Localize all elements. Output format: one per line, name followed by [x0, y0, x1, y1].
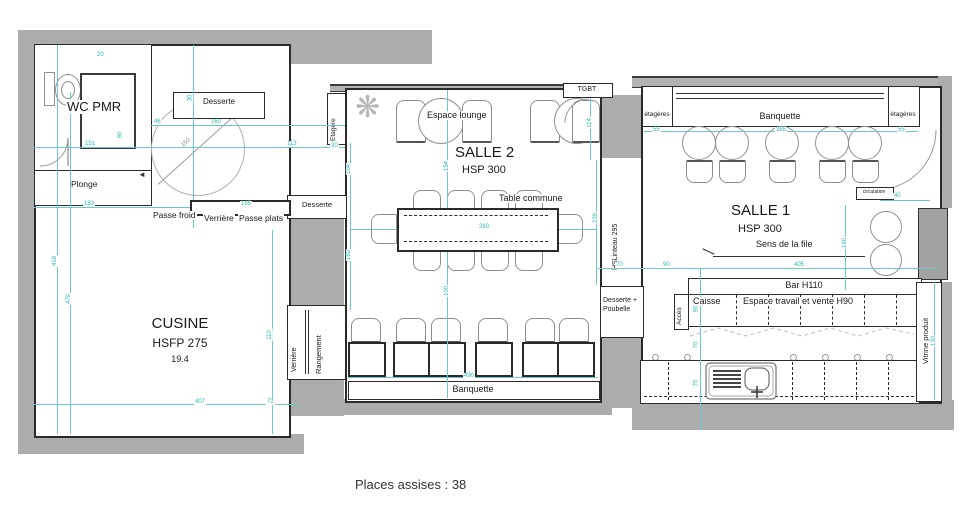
- plonge-label: Plonge: [70, 180, 98, 189]
- vitrine-label: Vitrine produit: [922, 296, 930, 386]
- dimension-value: 154: [444, 160, 450, 172]
- counter-divider: [856, 362, 857, 400]
- dimension-value: 113: [286, 141, 298, 147]
- wall-segment: [287, 217, 344, 305]
- salle1-height: HSP 300: [738, 224, 782, 236]
- tgbt-label: TGBT: [563, 86, 611, 93]
- counter-divider: [668, 362, 669, 400]
- dimension-value: 70: [693, 379, 699, 388]
- bar-label: Bar H110: [688, 281, 920, 290]
- passe-verriere-label: Verrière: [203, 214, 235, 223]
- dimension-value: 151: [84, 141, 96, 147]
- espace-travail-label: Espace travail et vente H90: [742, 297, 854, 306]
- square-table: [522, 342, 560, 377]
- wc-door-arc: [40, 138, 70, 168]
- dimension-line: [880, 200, 930, 201]
- dining-chair: [525, 318, 555, 343]
- cuisine-area: 19.4: [105, 355, 255, 364]
- dimension-value: 407: [194, 399, 206, 405]
- dimension-value: 385: [775, 127, 787, 133]
- table-commune-inner: [404, 241, 548, 242]
- round-table: [870, 244, 902, 276]
- dimension-value: 70: [693, 341, 699, 350]
- hs-linteau-label: HSLinteau 295: [612, 178, 619, 270]
- dimension-value: 90: [117, 131, 123, 140]
- etageres-left-label: étagères: [640, 112, 674, 119]
- floor-plan: WC PMR Plonge ◄ Passe froid Verrière Pas…: [0, 0, 960, 519]
- verriere-glass-line: [308, 310, 309, 374]
- dining-chair: [431, 318, 461, 343]
- salle1-name: SALLE 1: [731, 203, 790, 219]
- dining-chair: [478, 318, 508, 343]
- dimension-value: 55: [897, 127, 906, 133]
- counter-divider: [824, 362, 825, 400]
- dining-chair: [351, 318, 381, 343]
- banquette-salle2-label: Banquette: [348, 385, 598, 394]
- dimension-value: 55: [652, 127, 661, 133]
- round-table: [870, 211, 902, 243]
- dimension-value: 185: [240, 201, 252, 207]
- dimension-line: [70, 92, 71, 434]
- square-table: [393, 342, 431, 377]
- dimension-value: 160: [210, 119, 222, 125]
- table-commune-label: Table commune: [498, 194, 564, 203]
- table-commune-inner: [404, 215, 548, 216]
- dimension-value: 104: [346, 163, 352, 175]
- dimension-value: 30: [330, 143, 339, 149]
- counter-divider: [736, 295, 737, 325]
- queue-line: [713, 256, 865, 257]
- dining-chair: [559, 318, 589, 343]
- dimension-value: 70: [615, 262, 624, 268]
- lounge-table: [418, 98, 464, 144]
- dimension-line: [34, 404, 300, 405]
- dimension-line: [34, 147, 345, 148]
- espace-lounge-label: Espace lounge: [426, 111, 488, 120]
- wall-segment: [632, 400, 954, 430]
- wall-segment: [600, 336, 642, 408]
- verriere-glass-line: [305, 310, 306, 374]
- dimension-value: 418: [52, 255, 58, 267]
- cuisine-name: CUSINE: [105, 316, 255, 332]
- wall-segment: [18, 30, 432, 45]
- etageres-right-label: étagères: [886, 112, 920, 119]
- wall-segment: [598, 95, 642, 158]
- salle1-door-arc: [874, 128, 938, 192]
- dimension-value: 110: [267, 329, 273, 341]
- salle2-height: HSP 300: [462, 165, 506, 177]
- dining-chair: [686, 160, 713, 183]
- door-arrow-icon: ◄: [138, 171, 146, 179]
- dimension-value: 40: [893, 193, 902, 199]
- dimension-value: 183: [83, 201, 95, 207]
- dimension-value: 190: [842, 237, 848, 249]
- toilet-tank: [44, 72, 55, 106]
- dimension-value: 260: [478, 224, 490, 230]
- square-table: [475, 342, 513, 377]
- etageres-left-box: [642, 86, 674, 127]
- dining-chair: [719, 160, 746, 183]
- dimension-line: [598, 268, 938, 269]
- dimension-value: 114: [587, 117, 593, 129]
- dining-chair: [481, 250, 509, 271]
- cuisine-height: HSFP 275: [105, 337, 255, 350]
- lower-counter: [640, 360, 920, 404]
- dimension-value: 72: [266, 399, 275, 405]
- toilet-bowl-inner: [61, 81, 75, 99]
- bar-divider-line: [688, 294, 920, 295]
- sens-de-la-file-label: Sens de la file: [755, 240, 814, 249]
- rangement-label: Rangement: [315, 310, 323, 374]
- dimension-value: 490: [463, 373, 475, 379]
- dimension-value: 90: [662, 262, 671, 268]
- dimension-value: 130: [931, 335, 937, 347]
- etagere-label: Etagère: [331, 96, 338, 141]
- dining-chair: [447, 250, 475, 271]
- desserte-mid-label: Desserte: [291, 201, 343, 209]
- banquette-back-line: [676, 98, 884, 99]
- acces-label: Accès: [677, 297, 684, 325]
- verriere-vertical-label: Verrière: [291, 312, 298, 372]
- dimension-value: 100: [444, 285, 450, 297]
- desserte-poubelle-label: Desserte + Poubelle: [603, 296, 641, 314]
- passe-froid-label: Passe froid: [152, 211, 197, 220]
- wall-segment: [18, 30, 34, 454]
- wall-segment: [942, 282, 952, 404]
- square-table: [557, 342, 595, 377]
- counter-divider: [888, 362, 889, 400]
- dimension-line: [150, 125, 345, 126]
- queue-zigzag: [690, 326, 918, 340]
- etageres-right-box: [888, 86, 920, 127]
- counter-divider: [864, 295, 865, 325]
- dimension-value: 405: [793, 262, 805, 268]
- dimension-line: [700, 268, 701, 430]
- passe-plats-label: Passe plats: [238, 214, 284, 223]
- banquette-salle1-label: Banquette: [672, 112, 888, 121]
- seats-count-label: Places assises : 38: [355, 478, 466, 492]
- dimension-value: 30: [187, 94, 193, 103]
- plant-icon: ❋: [355, 92, 380, 124]
- desserte-top-label: Desserte: [186, 98, 252, 106]
- dining-chair: [769, 160, 796, 183]
- dimension-value: 90: [693, 305, 699, 314]
- salle2-name: SALLE 2: [455, 145, 514, 161]
- dimension-line: [57, 45, 58, 434]
- dining-chair: [396, 318, 426, 343]
- circulation-label: circulation: [856, 190, 892, 195]
- dimension-value: 479: [66, 293, 72, 305]
- dining-chair: [515, 250, 543, 271]
- dimension-value: 160: [346, 249, 352, 261]
- dimension-value: 46: [153, 119, 162, 125]
- wc-room-label: WC PMR: [66, 100, 122, 114]
- lounge-armchair: [462, 100, 492, 143]
- dining-chair: [819, 160, 846, 183]
- dimension-value: 20: [96, 52, 105, 58]
- dining-chair: [413, 250, 441, 271]
- banquette-back-line: [676, 93, 884, 94]
- square-table: [348, 342, 386, 377]
- counter-divider: [792, 362, 793, 400]
- counter-plinth-line: [644, 396, 914, 397]
- wall-cabinet-block: [918, 208, 948, 280]
- sink-icon: [705, 362, 777, 400]
- dimension-value: 239: [593, 212, 599, 224]
- counter-divider: [896, 295, 897, 325]
